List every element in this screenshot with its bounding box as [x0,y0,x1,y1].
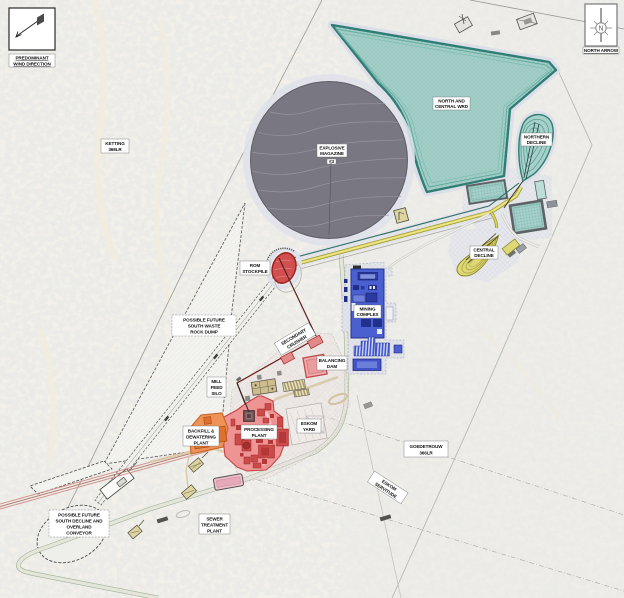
svg-text:KETTING: KETTING [105,141,125,146]
svg-text:366LR: 366LR [419,451,433,456]
svg-text:MINING: MINING [360,307,377,312]
svg-text:NORTHERN: NORTHERN [524,135,550,140]
svg-text:POSSIBLE FUTURE: POSSIBLE FUTURE [183,318,225,323]
svg-text:CENTRAL WRD: CENTRAL WRD [435,104,469,109]
svg-text:ROM: ROM [250,263,261,268]
svg-text:POSSIBLE FUTURE: POSSIBLE FUTURE [58,513,100,518]
svg-text:SOUTH DECLINE AND: SOUTH DECLINE AND [56,519,104,524]
svg-text:YARD: YARD [303,427,316,432]
svg-text:PREDOMINANT: PREDOMINANT [15,56,48,61]
svg-text:MAGAZINE: MAGAZINE [320,151,344,156]
svg-text:DEWATERING: DEWATERING [186,435,216,440]
svg-text:ESKOM: ESKOM [301,421,318,426]
svg-text:STOCKPILE: STOCKPILE [242,269,267,274]
svg-text:DECLINE: DECLINE [527,140,546,145]
svg-text:ROCK DUMP: ROCK DUMP [190,330,217,335]
svg-text:BALANCING: BALANCING [319,358,346,363]
svg-text:368LR: 368LR [108,147,122,152]
svg-text:GOEDETROUW: GOEDETROUW [410,444,444,449]
svg-text:BACKFILL &: BACKFILL & [188,429,215,434]
svg-text:NORTH ARROW: NORTH ARROW [584,48,619,53]
svg-text:CONVEYOR: CONVEYOR [66,531,92,536]
svg-text:FEED: FEED [211,385,224,390]
svg-text:DAM: DAM [327,364,337,369]
svg-text:PROCESSING: PROCESSING [244,427,274,432]
svg-text:PLANT: PLANT [252,433,267,438]
svg-text:TREATMENT: TREATMENT [201,523,228,528]
svg-text:SEWER: SEWER [206,517,223,522]
svg-text:PLANT: PLANT [194,441,209,446]
svg-text:OVERLAND: OVERLAND [67,525,93,530]
svg-text:SILO: SILO [211,391,222,396]
svg-text:COMPLEX: COMPLEX [356,312,379,317]
svg-text:N: N [598,26,603,33]
svg-text:NORTH AND: NORTH AND [438,99,465,104]
svg-text:PLANT: PLANT [207,529,222,534]
svg-text:SOUTH WASTE: SOUTH WASTE [188,324,221,329]
svg-text:WIND DIRECTION: WIND DIRECTION [13,62,51,67]
svg-text:EXPLOSIVE: EXPLOSIVE [319,146,344,151]
svg-text:CENTRAL: CENTRAL [473,248,495,253]
svg-text:MILL: MILL [211,379,222,384]
svg-text:DECLINE: DECLINE [474,253,493,258]
svg-text:#3: #3 [329,159,334,164]
